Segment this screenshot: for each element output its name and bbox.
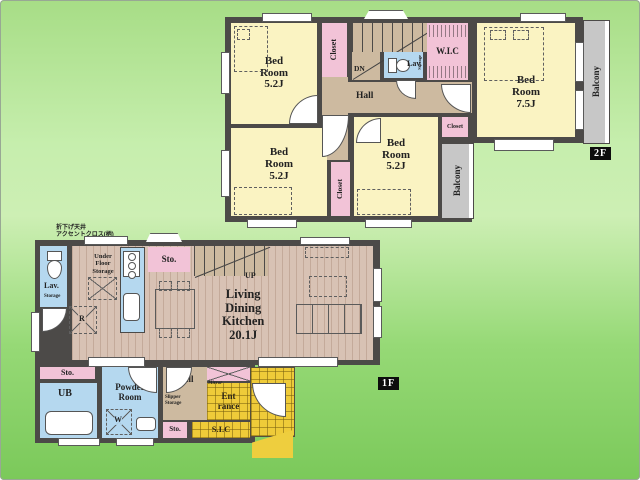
entrance: Ent rance xyxy=(207,383,250,420)
pillow-symbol-east-1 xyxy=(490,30,506,40)
tv-board-symbol xyxy=(305,247,349,258)
mirror-label: Mirror xyxy=(208,381,222,386)
balcony-south: Balcony xyxy=(441,143,474,219)
entrance-label: Ent rance xyxy=(218,392,240,411)
balcony-east: Balcony xyxy=(583,20,610,144)
closet-sw-label: Closet xyxy=(336,179,344,199)
window xyxy=(221,150,230,197)
toilet-bowl-icon-1f xyxy=(47,260,62,279)
bedroom-south-label: Bed Room 5.2J xyxy=(382,138,410,174)
storage-hall-label: Sto. xyxy=(169,426,180,434)
window-bay xyxy=(364,10,408,19)
storage-west-label: Sto. xyxy=(61,369,74,378)
balcony-east-label: Balcony xyxy=(592,66,602,97)
low-table-symbol xyxy=(309,276,347,297)
bathtub-icon xyxy=(45,411,93,435)
entrance-closet xyxy=(207,367,250,381)
wic-label: W.I.C xyxy=(435,47,460,57)
unit-bath: UB xyxy=(40,383,97,438)
window xyxy=(31,312,40,352)
closet-sw: Closet xyxy=(331,162,350,216)
sofa-symbol xyxy=(296,304,362,334)
floor2-label: 2F xyxy=(590,147,611,160)
lavatory-1f: Lav. Storage xyxy=(40,246,67,307)
chair-symbol xyxy=(159,281,172,291)
floor1-label: 1F xyxy=(378,377,399,390)
window xyxy=(247,219,297,228)
window xyxy=(365,219,412,228)
window xyxy=(58,438,100,446)
sic-label: S.I.C xyxy=(212,425,230,434)
shoe-in-closet: S.I.C xyxy=(192,422,250,438)
window-bay-south xyxy=(494,139,554,151)
chair-symbol xyxy=(177,328,190,338)
ub-label: UB xyxy=(58,389,72,400)
floor-plan-image: Balcony Balcony Hall DN Bed Room 5.2J Cl… xyxy=(0,0,640,480)
window xyxy=(300,237,350,245)
closet-east: Closet xyxy=(442,117,468,137)
window xyxy=(116,438,154,446)
washer-label: W xyxy=(114,416,122,425)
hanger-rail-icon-bottom xyxy=(429,66,466,78)
slipper-storage-label: Slipper Storage xyxy=(165,395,181,407)
window-sliding xyxy=(88,357,145,367)
bed-symbol-sw xyxy=(234,187,292,215)
refrigerator-box: R xyxy=(69,306,97,334)
sink-icon xyxy=(123,293,140,321)
kitchen-counter xyxy=(120,247,145,333)
bed-symbol-south xyxy=(357,189,411,215)
chair-symbol xyxy=(159,328,172,338)
window-balcony-door xyxy=(575,42,584,82)
storage-hall: Sto. xyxy=(163,422,187,438)
closet-nw: Closet xyxy=(322,23,347,77)
dining-table-symbol xyxy=(155,289,195,329)
pillow-symbol-nw xyxy=(237,29,250,40)
stairs-up-label: UP xyxy=(245,271,256,280)
basin-icon xyxy=(136,417,156,431)
closet-east-label: Closet xyxy=(447,124,463,130)
window xyxy=(373,306,382,338)
window xyxy=(520,13,566,22)
lav-1f-storage-label: Storage xyxy=(44,294,60,299)
window xyxy=(221,52,230,94)
window xyxy=(373,268,382,302)
window-balcony-door xyxy=(575,90,584,130)
lav-2f-storage-label: Storage xyxy=(418,55,423,70)
walk-in-closet: W.I.C xyxy=(427,23,468,80)
window xyxy=(84,236,128,245)
balcony-south-label: Balcony xyxy=(453,165,463,196)
stairs-dn-label: DN xyxy=(354,64,365,73)
bedroom-sw-label: Bed Room 5.2J xyxy=(265,147,293,183)
window xyxy=(262,13,312,22)
refrigerator-label: R xyxy=(78,314,86,323)
storage-west: Sto. xyxy=(40,367,95,379)
stove-icon xyxy=(123,251,140,277)
storage-kitchen-label: Sto. xyxy=(162,255,177,265)
closet-nw-label: Closet xyxy=(330,39,339,60)
lav-1f-label: Lav. xyxy=(44,282,59,291)
storage-kitchen: Sto. xyxy=(148,247,190,272)
ldk-label: Living Dining Kitchen 20.1J xyxy=(222,288,264,342)
lavatory-2f: Lav. Storage xyxy=(384,52,423,78)
window-bay xyxy=(146,233,182,242)
chair-symbol xyxy=(177,281,190,291)
under-floor-storage-box xyxy=(88,277,117,300)
window-sliding xyxy=(258,357,338,367)
hall-2f-label: Hall xyxy=(356,91,373,101)
hanger-rail-icon-top xyxy=(429,25,466,37)
pillow-symbol-east-2 xyxy=(513,30,529,40)
